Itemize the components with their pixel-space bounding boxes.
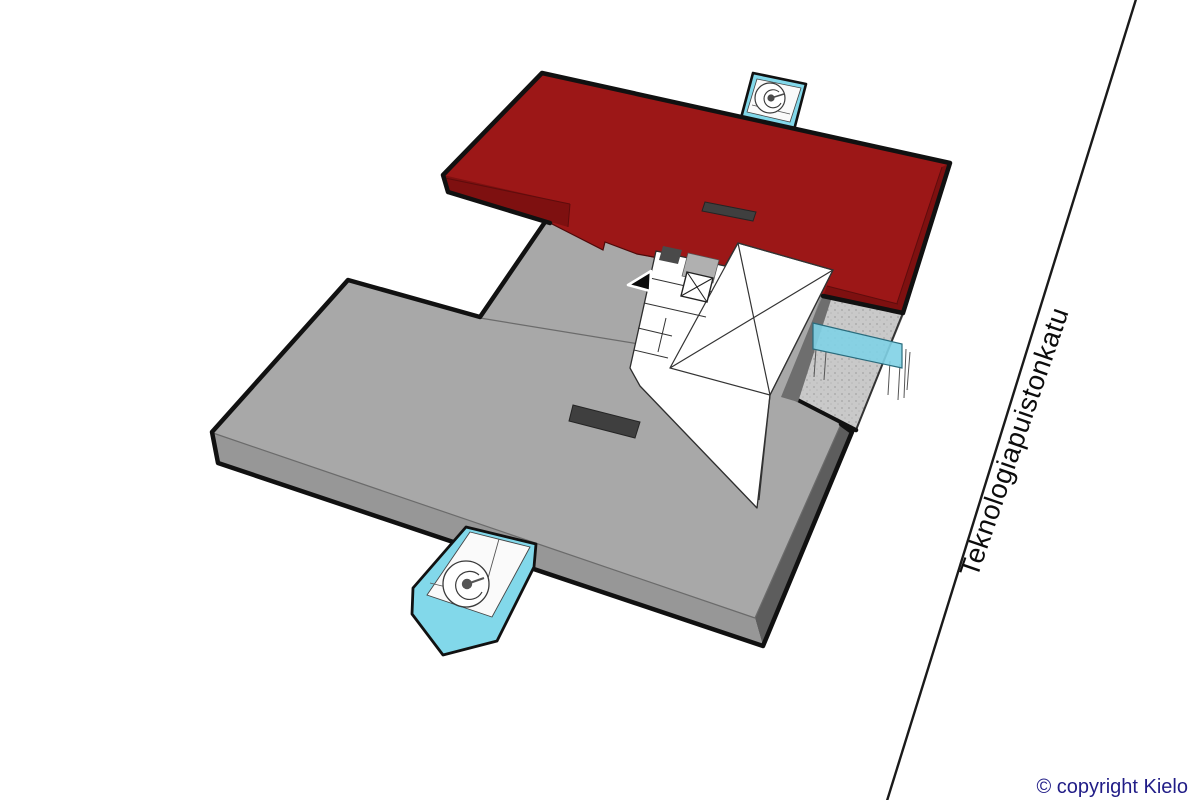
diagram-canvas: Teknologiapuistonkatu © copyright Kielo <box>0 0 1200 800</box>
spiral-stair-icon-large <box>443 561 489 607</box>
elevator-shaft-icon <box>681 272 713 302</box>
copyright-label: © copyright Kielo <box>1037 776 1188 798</box>
floorplan-diagram: Teknologiapuistonkatu © copyright Kielo <box>0 0 1200 800</box>
street-label: Teknologiapuistonkatu <box>953 303 1074 580</box>
spiral-stair-icon <box>755 83 785 113</box>
stair-tower-bottom <box>412 527 536 655</box>
street: Teknologiapuistonkatu <box>886 0 1137 800</box>
